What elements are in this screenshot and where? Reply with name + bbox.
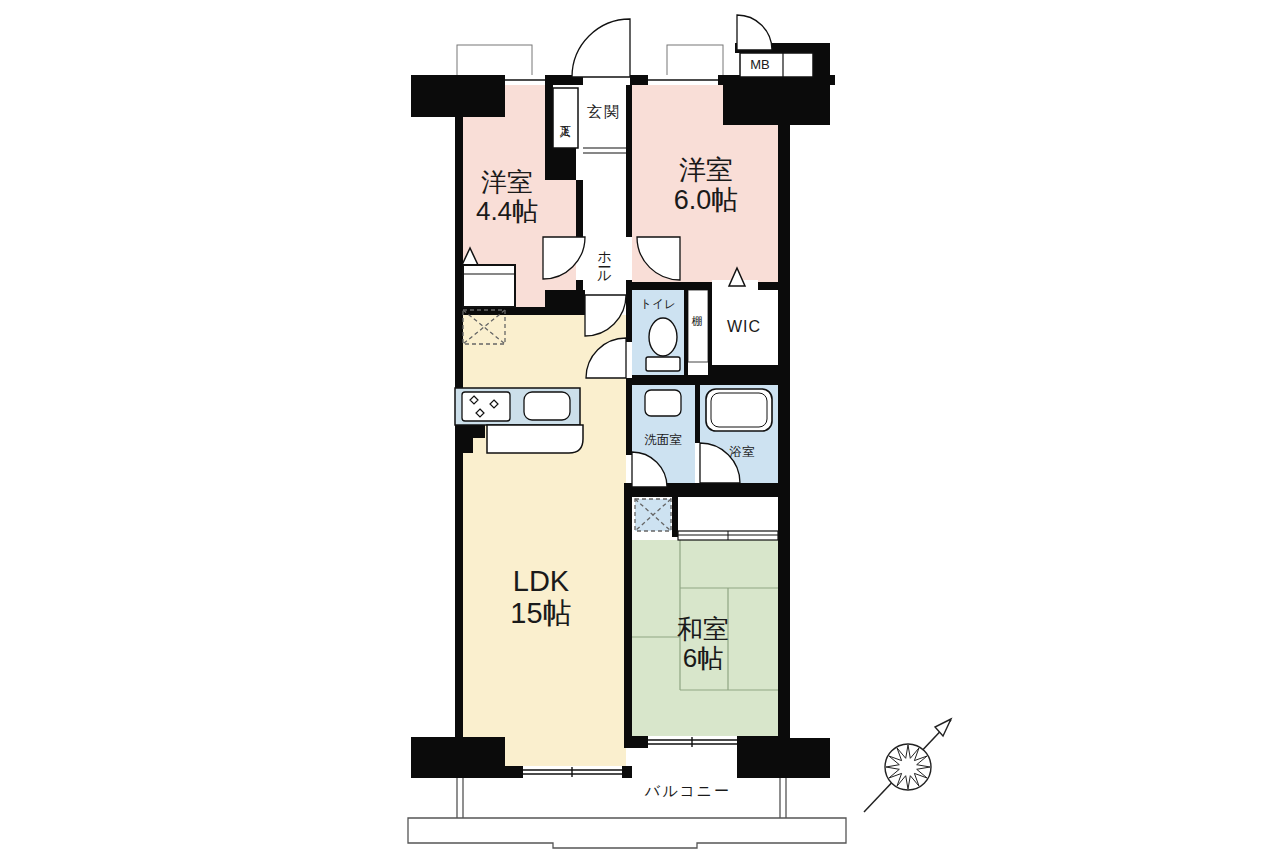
western-room-6-0-name: 洋室 xyxy=(674,155,739,185)
wall-shoe-left xyxy=(545,85,553,180)
door-opening-toilet xyxy=(626,342,632,378)
sink-icon xyxy=(524,392,570,420)
wall-corridor-b xyxy=(626,378,632,455)
balcony-rail-band xyxy=(408,818,846,848)
western-room-6-0-size: 6.0帖 xyxy=(674,185,739,215)
label-western-room-6-0: 洋室 6.0帖 xyxy=(674,155,739,215)
porch-left xyxy=(457,45,532,77)
entrance-door-arc xyxy=(572,19,630,77)
wall-hall-right-lower xyxy=(626,280,632,290)
balcony-railing xyxy=(408,778,846,848)
wall-kitchen-stub-b xyxy=(455,438,473,453)
door-opening-washroom xyxy=(626,455,632,483)
toilet-tank-icon xyxy=(646,357,680,371)
kitchen-island xyxy=(487,425,583,453)
stove-icon xyxy=(462,392,510,421)
porch-right xyxy=(667,45,723,77)
balcony-rail-connectors xyxy=(457,778,786,818)
wall-ldk-washitsu xyxy=(624,483,632,738)
label-toilet: トイレ xyxy=(640,298,675,311)
compass-circle xyxy=(885,744,931,790)
door-opening-western60 xyxy=(626,237,632,280)
wall-stub-top-right xyxy=(813,53,830,125)
wall-hall-left-lower xyxy=(576,280,583,290)
label-shelf: 棚 xyxy=(692,315,703,327)
label-western-room-4-4: 洋室 4.4帖 xyxy=(476,168,538,226)
wall-kitchen-stub-a xyxy=(455,425,485,438)
wall-hall-left-upper xyxy=(576,180,583,237)
label-meter-box: MB xyxy=(750,58,770,73)
shoe-cabinet-box xyxy=(553,88,578,148)
wall-toilet-shelf xyxy=(684,290,688,375)
bathtub-icon xyxy=(706,389,772,431)
western-room-4-4-size: 4.4帖 xyxy=(476,197,538,226)
wall-block-bottom-left xyxy=(411,737,505,778)
compass xyxy=(864,719,951,812)
washer-space xyxy=(635,499,671,531)
label-japanese-room: 和室 6帖 xyxy=(677,615,729,673)
label-balcony: バルコニー xyxy=(645,783,731,800)
floorplan-stage: 洋室 4.4帖 洋室 6.0帖 玄関 下足入 ホール MB トイレ 棚 WIC … xyxy=(0,0,1280,853)
washbasin-icon xyxy=(645,390,681,416)
western-room-4-4-name: 洋室 xyxy=(476,168,538,197)
wall-shelf-wic xyxy=(708,290,712,365)
label-ldk: LDK 15帖 xyxy=(510,565,571,630)
oshiire-closet-floor xyxy=(678,497,778,533)
wall-hall-right-upper xyxy=(626,85,632,237)
room-ldk-floor xyxy=(463,315,626,766)
wall-corridor-a xyxy=(626,290,632,342)
toilet-fixture xyxy=(646,318,680,371)
western44-closet xyxy=(463,265,515,307)
wall-block-top-right xyxy=(723,77,813,125)
japanese-room-size: 6帖 xyxy=(677,644,729,673)
label-bathroom: 浴室 xyxy=(730,445,755,459)
wall-wic-bottom xyxy=(708,365,778,377)
japanese-room-name: 和室 xyxy=(677,615,729,644)
ldk-name: LDK xyxy=(510,565,571,597)
label-entrance: 玄関 xyxy=(587,104,621,121)
wall-right xyxy=(778,85,790,748)
toilet-bowl-icon xyxy=(649,318,677,356)
mb-door-arc xyxy=(737,15,772,50)
wall-below-shoe xyxy=(553,148,576,180)
wall-nook-closet xyxy=(672,497,678,537)
label-washroom: 洗面室 xyxy=(644,433,682,447)
ldk-size: 15帖 xyxy=(510,597,571,629)
label-wic: WIC xyxy=(727,318,761,336)
label-hall: ホール xyxy=(596,241,612,279)
wall-washroom-bathroom xyxy=(695,385,700,443)
floorplan-drawing xyxy=(0,0,1280,853)
